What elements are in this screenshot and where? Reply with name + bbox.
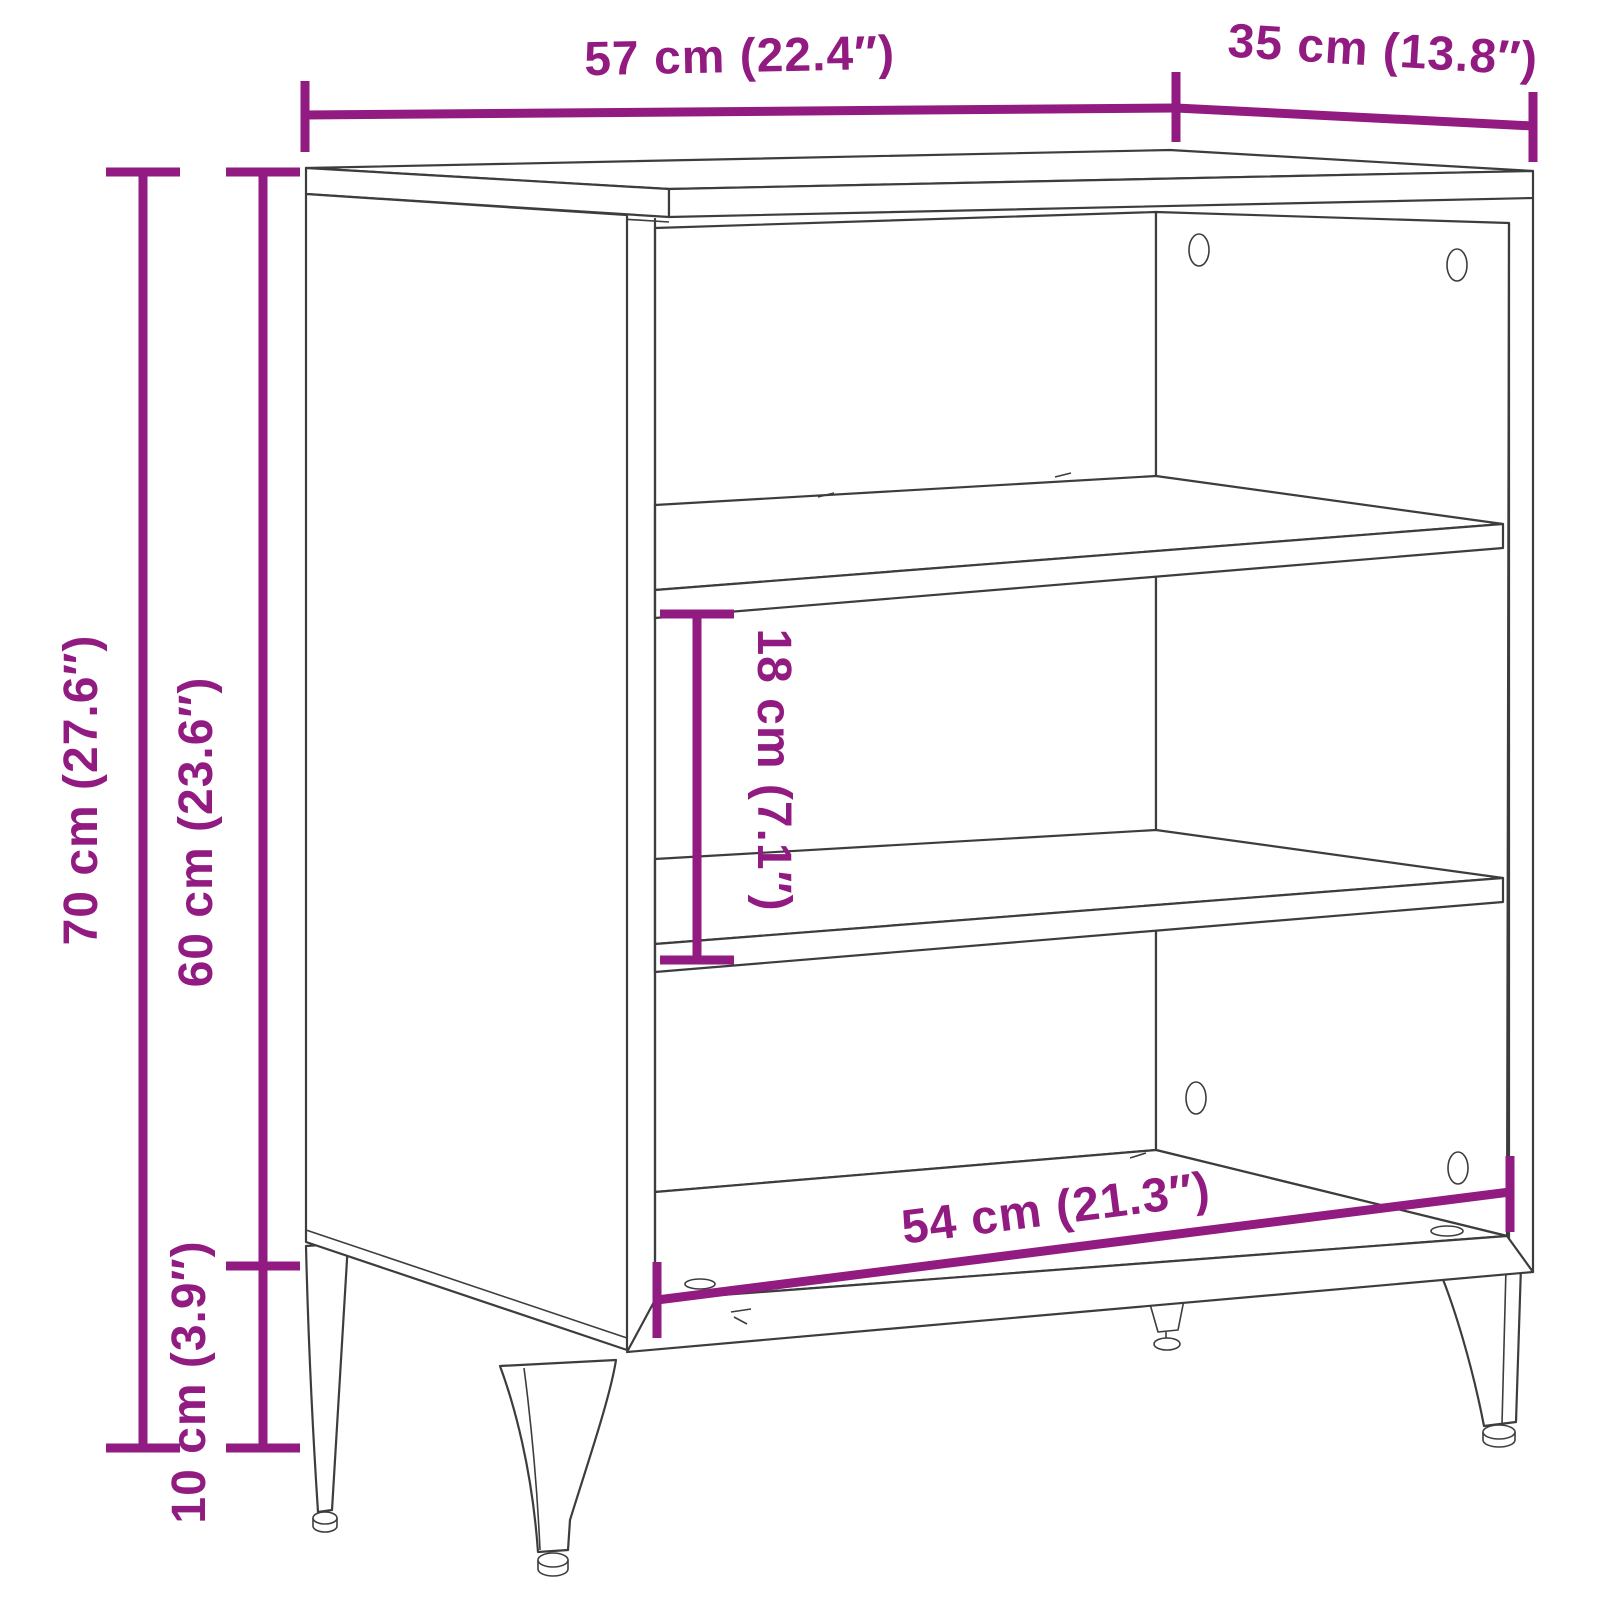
dim-line-depth	[1176, 92, 1533, 162]
back-panel	[655, 212, 1156, 1192]
back-left-leg	[306, 1243, 348, 1512]
front-right-edge	[1509, 198, 1533, 1272]
furniture-dimension-diagram: 57 cm (22.4″) 35 cm (13.8″) 70 cm (27.6″…	[0, 0, 1600, 1600]
dim-label-width: 57 cm (22.4″)	[584, 27, 896, 86]
dim-label-leg-height: 10 cm (3.9″)	[163, 1240, 216, 1523]
dim-line-body-and-leg-height	[226, 172, 300, 1448]
back-right-foot	[1154, 1338, 1180, 1350]
dim-label-body-height: 60 cm (23.6″)	[170, 677, 223, 988]
right-side-panel	[1156, 212, 1509, 1236]
cabinet-drawing	[306, 150, 1533, 1576]
dim-label-depth: 35 cm (13.8″)	[1226, 15, 1539, 87]
sideboard-diagram-canvas: 57 cm (22.4″) 35 cm (13.8″) 70 cm (27.6″…	[0, 0, 1600, 1600]
left-side-panel	[306, 194, 655, 1350]
dim-label-total-height: 70 cm (27.6″)	[55, 635, 108, 946]
front-right-leg	[1440, 1266, 1521, 1426]
dim-label-shelf-clearance: 18 cm (7.1″)	[747, 628, 800, 911]
dim-line-width	[305, 72, 1176, 152]
front-left-leg	[500, 1360, 616, 1552]
